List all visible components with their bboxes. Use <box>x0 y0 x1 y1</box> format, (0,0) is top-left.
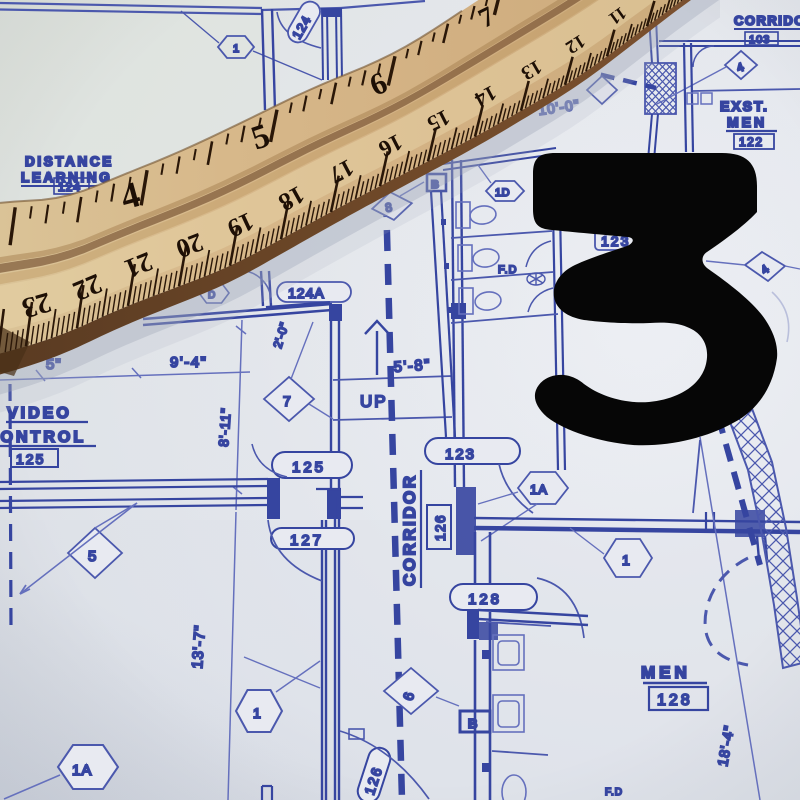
svg-text:1: 1 <box>622 552 630 568</box>
svg-text:122: 122 <box>739 135 764 149</box>
svg-text:128: 128 <box>468 591 502 608</box>
svg-text:5: 5 <box>88 548 96 565</box>
svg-text:123: 123 <box>445 446 476 463</box>
svg-text:125: 125 <box>16 451 45 467</box>
svg-text:126: 126 <box>433 514 448 541</box>
svg-text:UP: UP <box>360 392 388 411</box>
svg-text:CORRIDOR: CORRIDOR <box>400 473 419 586</box>
svg-text:9'-4": 9'-4" <box>170 354 207 371</box>
svg-text:128: 128 <box>657 692 693 709</box>
svg-text:1A: 1A <box>530 482 548 497</box>
svg-text:125: 125 <box>292 459 326 476</box>
svg-text:1: 1 <box>253 705 261 721</box>
svg-text:1A: 1A <box>72 762 92 779</box>
svg-text:F.D: F.D <box>605 787 623 798</box>
svg-text:1: 1 <box>233 43 239 55</box>
svg-text:MEN: MEN <box>727 114 767 130</box>
svg-text:7: 7 <box>283 393 291 409</box>
svg-text:8'-11": 8'-11" <box>216 407 234 447</box>
svg-text:13'-7": 13'-7" <box>189 624 209 669</box>
svg-text:124A: 124A <box>288 285 325 301</box>
svg-text:MEN: MEN <box>641 663 691 682</box>
svg-text:1D: 1D <box>495 187 510 199</box>
svg-text:DISTANCE: DISTANCE <box>25 154 114 169</box>
svg-text:CONTROL: CONTROL <box>0 429 86 446</box>
svg-text:CORRIDO: CORRIDO <box>734 13 800 28</box>
svg-text:5'-8": 5'-8" <box>393 356 431 376</box>
svg-text:127: 127 <box>290 532 324 549</box>
svg-text:EXST.: EXST. <box>720 98 769 114</box>
